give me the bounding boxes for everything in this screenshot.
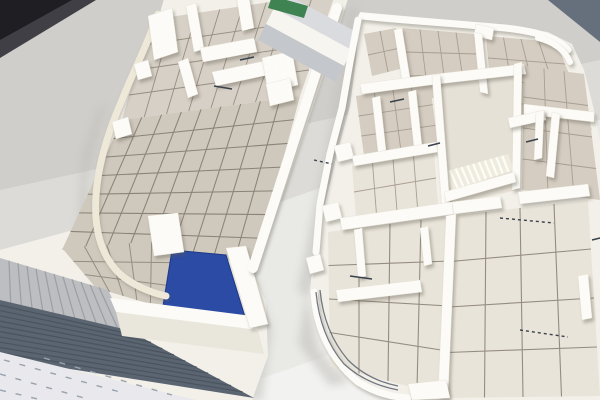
- photo-canvas: [0, 0, 600, 400]
- right-model: [306, 12, 600, 400]
- photo-architectural-models: [0, 0, 600, 400]
